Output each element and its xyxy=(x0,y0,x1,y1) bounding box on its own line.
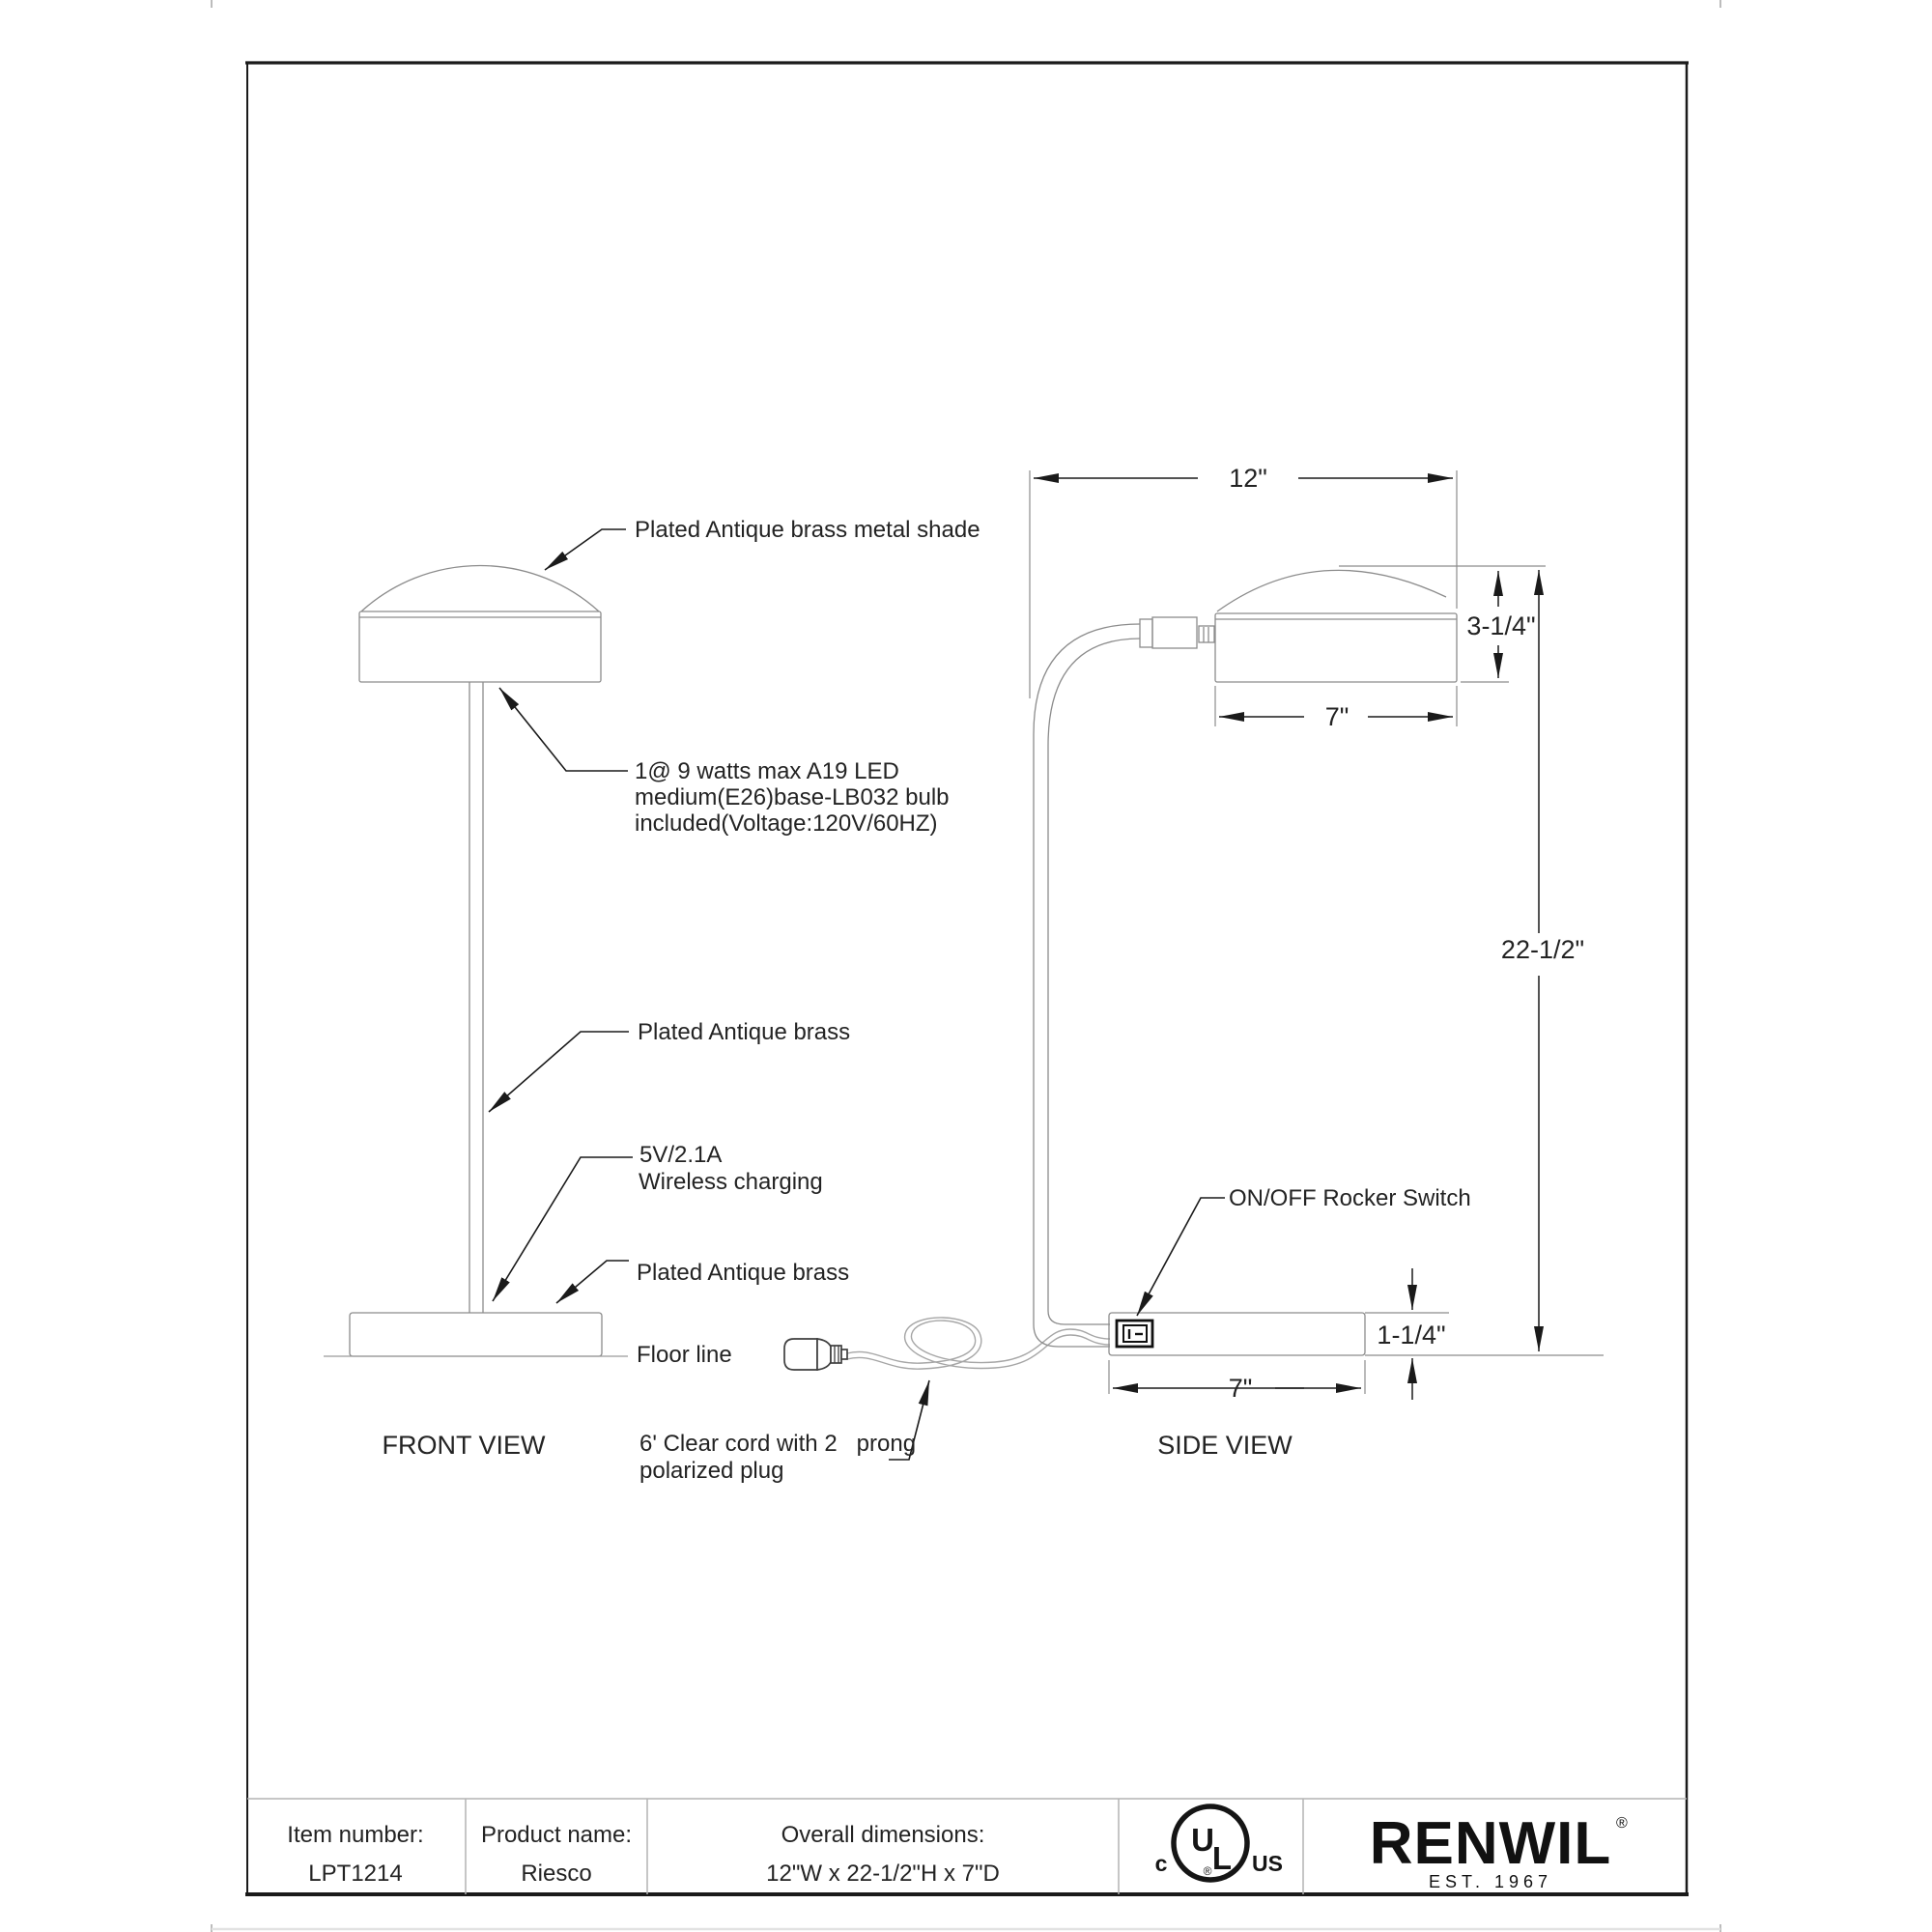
label-bulb-line2: medium(E26)base-LB032 bulb xyxy=(635,784,950,810)
ul-logo-c: c xyxy=(1155,1851,1168,1876)
label-switch: ON/OFF Rocker Switch xyxy=(1229,1185,1471,1211)
dim-shade-depth: 7" xyxy=(1325,702,1350,731)
dimension-lines xyxy=(1034,478,1539,1400)
drawing-border xyxy=(245,63,1689,1894)
plug-and-cord xyxy=(784,1318,1110,1370)
side-shade-dome xyxy=(1217,570,1446,611)
front-base xyxy=(350,1313,602,1356)
dim-overall-height: 22-1/2" xyxy=(1501,935,1584,964)
side-arm-inner xyxy=(1048,639,1140,1324)
front-view-drawing xyxy=(324,565,628,1356)
ul-logo-u: U xyxy=(1191,1822,1214,1858)
dim-base-height: 1-1/4" xyxy=(1377,1321,1445,1350)
arm-knuckle xyxy=(1199,626,1214,642)
label-bulb-line1: 1@ 9 watts max A19 LED xyxy=(635,758,899,784)
label-cord-line2: polarized plug xyxy=(639,1458,783,1484)
item-number-value: LPT1214 xyxy=(308,1861,402,1887)
ul-certification-logo: U L ® c US xyxy=(1155,1806,1283,1880)
side-view-drawing xyxy=(1034,570,1457,1355)
leader-shade xyxy=(545,529,626,570)
label-floor-line: Floor line xyxy=(637,1342,732,1368)
annotation-labels: Plated Antique brass metal shade 1@ 9 wa… xyxy=(382,517,1470,1484)
renwil-wordmark: RENWIL xyxy=(1370,1810,1612,1877)
dim-overall-width: 12" xyxy=(1229,464,1267,493)
label-cord-line1: 6' Clear cord with 2 prong xyxy=(639,1431,916,1457)
side-view-title: SIDE VIEW xyxy=(1157,1431,1293,1460)
dim-shade-height: 3-1/4" xyxy=(1466,611,1535,640)
renwil-est-text: EST. 1967 xyxy=(1429,1872,1552,1891)
label-bulb-line3: included(Voltage:120V/60HZ) xyxy=(635,810,938,837)
side-arm-outer xyxy=(1034,624,1140,1347)
dimension-labels: 12" 3-1/4" 7" 22-1/2" 1-1/4" 7" xyxy=(1229,464,1584,1403)
overall-dimensions-value: 12"W x 22-1/2"H x 7"D xyxy=(766,1861,1000,1887)
power-cord xyxy=(847,1318,1110,1369)
product-name-label: Product name: xyxy=(481,1822,632,1848)
spec-sheet-page: Plated Antique brass metal shade 1@ 9 wa… xyxy=(0,0,1932,1932)
plug-tip xyxy=(841,1350,847,1359)
dim-base-depth: 7" xyxy=(1229,1374,1253,1403)
product-name-value: Riesco xyxy=(521,1861,591,1887)
label-charging-line2: Wireless charging xyxy=(639,1169,823,1195)
label-base: Plated Antique brass xyxy=(637,1260,849,1286)
leader-charging xyxy=(493,1157,633,1301)
leader-base xyxy=(556,1261,629,1303)
front-view-title: FRONT VIEW xyxy=(382,1431,546,1460)
ul-logo-l: L xyxy=(1212,1840,1232,1876)
plug-ribs xyxy=(831,1346,841,1363)
front-shade-dome xyxy=(361,565,599,611)
spec-sheet-drawing: Plated Antique brass metal shade 1@ 9 wa… xyxy=(0,0,1932,1932)
arm-coupler-small xyxy=(1140,619,1152,647)
ul-logo-registered-icon: ® xyxy=(1204,1864,1212,1878)
item-number-label: Item number: xyxy=(287,1822,423,1848)
plug-neck xyxy=(817,1339,831,1370)
leader-switch xyxy=(1137,1198,1225,1316)
overall-dimensions-label: Overall dimensions: xyxy=(781,1822,985,1848)
arm-coupler-large xyxy=(1152,617,1197,648)
plug-body xyxy=(784,1339,817,1370)
leader-stem xyxy=(489,1032,629,1112)
side-shade-band xyxy=(1215,613,1457,682)
label-stem: Plated Antique brass xyxy=(638,1019,850,1045)
ul-logo-us: US xyxy=(1252,1851,1283,1876)
leader-bulb xyxy=(499,688,628,771)
renwil-registered-icon: ® xyxy=(1616,1815,1628,1832)
renwil-logo: RENWIL ® EST. 1967 xyxy=(1370,1810,1628,1891)
label-charging-line1: 5V/2.1A xyxy=(639,1142,722,1168)
front-shade-band xyxy=(359,611,601,682)
crop-marks xyxy=(212,0,1720,1932)
power-cord xyxy=(847,1321,1110,1363)
label-shade: Plated Antique brass metal shade xyxy=(635,517,980,543)
extension-lines xyxy=(1030,470,1604,1355)
footer-table: Item number: LPT1214 Product name: Riesc… xyxy=(247,1799,1687,1894)
leader-lines xyxy=(489,529,1225,1460)
